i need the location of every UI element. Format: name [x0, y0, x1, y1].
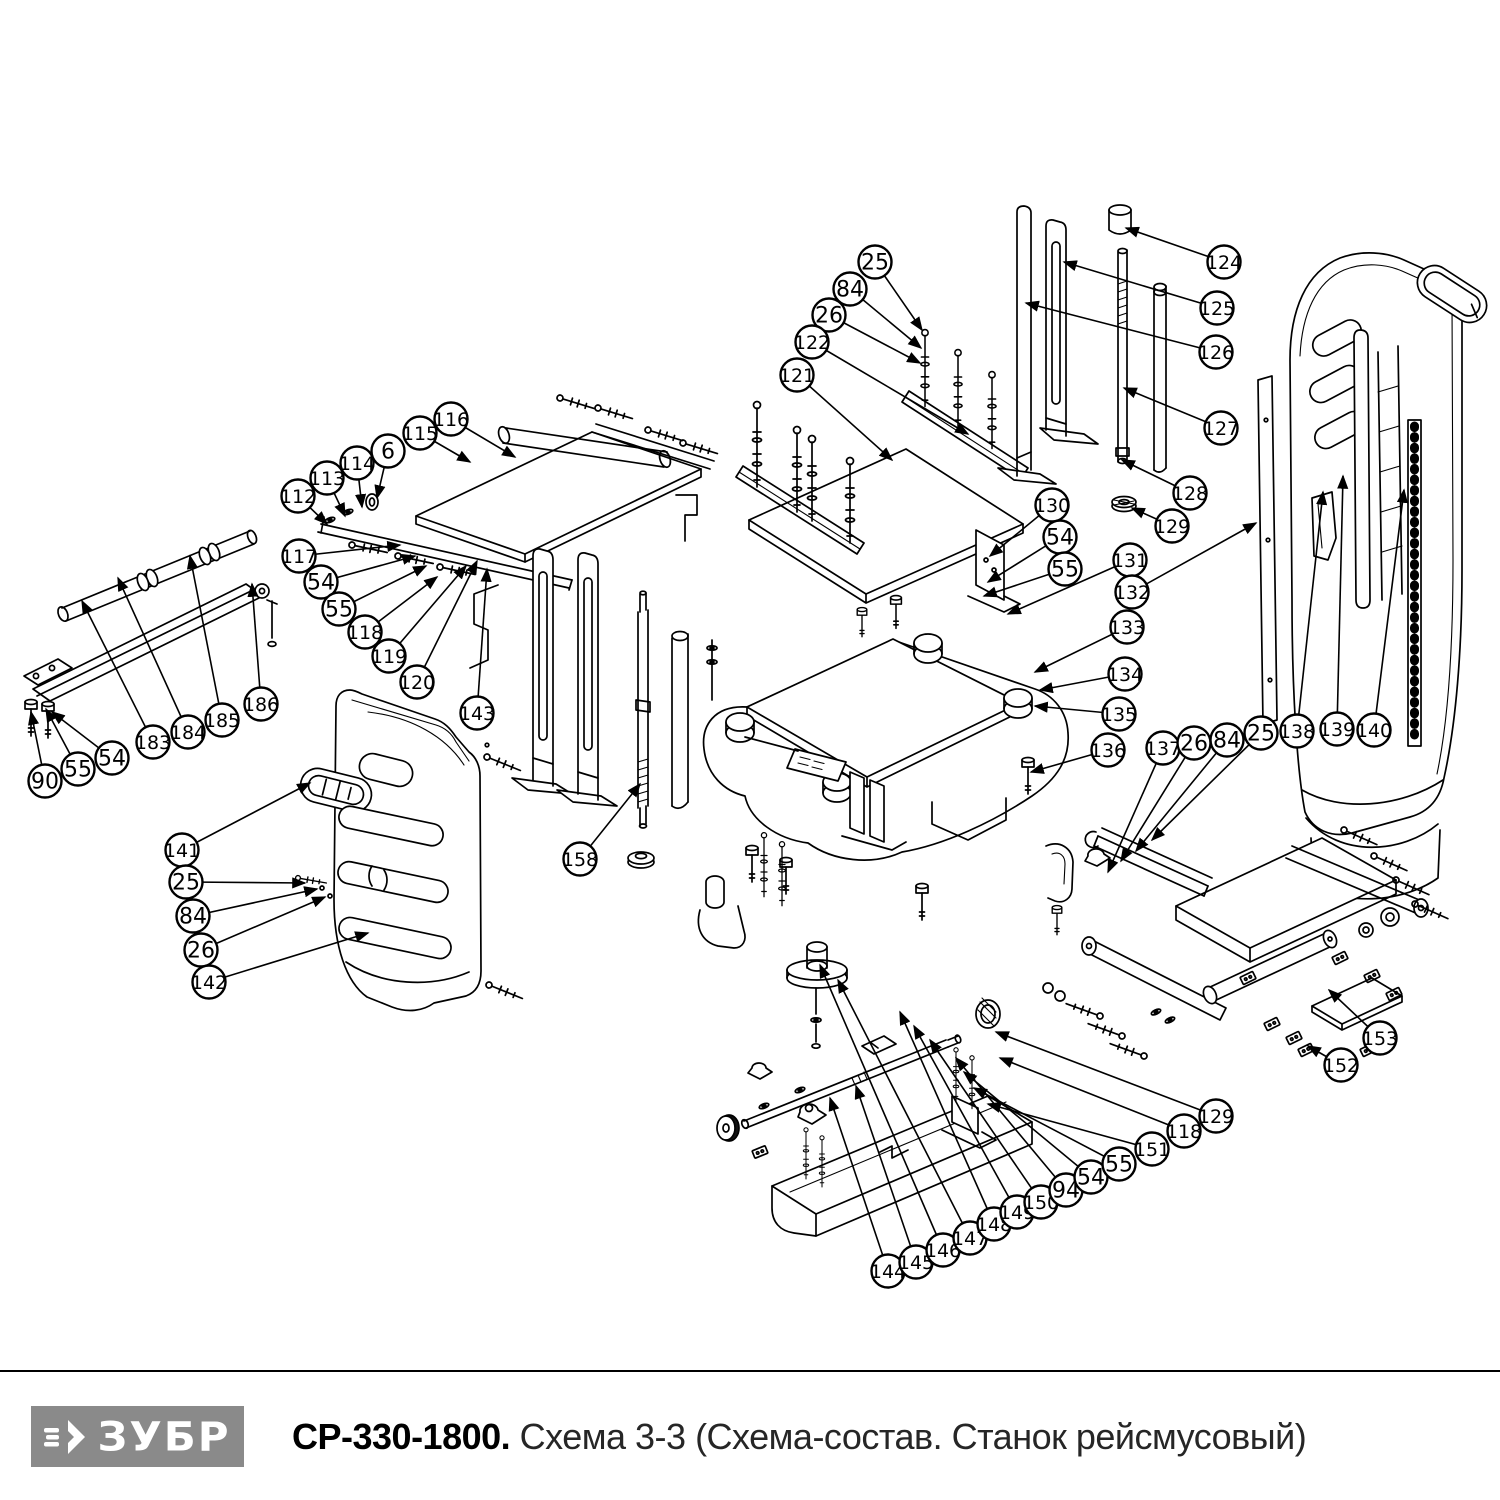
balloon-131: 131 — [1112, 544, 1148, 577]
balloon-116: 116 — [433, 403, 469, 436]
balloon-90: 90 — [29, 765, 62, 798]
balloon-130: 130 — [1034, 489, 1070, 522]
schema-description: Схема 3-3 (Схема-состав. Станок рейсмусо… — [510, 1416, 1306, 1458]
part-main-body — [698, 596, 1073, 948]
svg-text:115: 115 — [402, 423, 438, 445]
balloon-143: 143 — [459, 697, 495, 730]
balloon-115: 115 — [402, 417, 438, 450]
part-left-front-cover — [295, 690, 524, 1010]
leader-line — [1064, 262, 1217, 308]
diagram-stage: 1161156114113112117545511811912014390555… — [0, 0, 1500, 1500]
balloon-128: 128 — [1172, 477, 1208, 510]
leader-line — [389, 566, 466, 656]
svg-text:84: 84 — [836, 278, 864, 303]
balloon-127: 127 — [1203, 412, 1239, 445]
balloon-152: 152 — [1323, 1049, 1359, 1082]
leader-line — [417, 561, 477, 682]
balloon-135: 135 — [1101, 698, 1137, 731]
svg-text:90: 90 — [31, 770, 59, 795]
balloon-186: 186 — [243, 688, 279, 721]
balloon-142: 142 — [191, 966, 227, 999]
leader-line — [193, 889, 317, 916]
balloon-185: 185 — [204, 704, 240, 737]
balloon-26: 26 — [1178, 727, 1211, 760]
svg-text:26: 26 — [1180, 732, 1208, 757]
balloon-54: 54 — [96, 742, 129, 775]
svg-text:122: 122 — [794, 332, 830, 354]
svg-text:184: 184 — [170, 722, 206, 744]
svg-text:138: 138 — [1279, 721, 1315, 743]
svg-text:139: 139 — [1319, 719, 1355, 741]
svg-text:137: 137 — [1145, 738, 1181, 760]
svg-text:126: 126 — [1198, 342, 1234, 364]
balloon-140: 140 — [1356, 714, 1392, 747]
balloon-84: 84 — [177, 900, 210, 933]
part-support-rod-assembly — [24, 529, 277, 738]
svg-text:186: 186 — [243, 694, 279, 716]
balloon-121: 121 — [779, 359, 815, 392]
svg-text:54: 54 — [98, 747, 126, 772]
svg-text:128: 128 — [1172, 483, 1208, 505]
balloon-119: 119 — [371, 640, 407, 673]
balloon-112: 112 — [280, 480, 316, 513]
svg-text:55: 55 — [1051, 558, 1079, 583]
svg-text:125: 125 — [1199, 298, 1235, 320]
balloon-138: 138 — [1279, 715, 1315, 748]
svg-text:55: 55 — [1105, 1153, 1133, 1178]
svg-text:55: 55 — [325, 598, 353, 623]
svg-text:118: 118 — [1166, 1121, 1202, 1143]
svg-text:54: 54 — [1077, 1166, 1105, 1191]
svg-text:117: 117 — [281, 546, 317, 568]
svg-text:54: 54 — [307, 571, 335, 596]
leader-line — [201, 897, 325, 950]
svg-text:134: 134 — [1107, 664, 1143, 686]
svg-text:127: 127 — [1203, 418, 1239, 440]
svg-text:55: 55 — [64, 758, 92, 783]
balloon-129: 129 — [1198, 1100, 1234, 1133]
model-number: СР-330-1800. — [292, 1416, 510, 1458]
part-right-side-cover — [1258, 253, 1493, 899]
svg-text:183: 183 — [135, 732, 171, 754]
exploded-view-drawing: 1161156114113112117545511811912014390555… — [0, 0, 1500, 1500]
svg-text:129: 129 — [1198, 1106, 1234, 1128]
balloon-132: 132 — [1114, 576, 1150, 609]
balloon-84: 84 — [1211, 724, 1244, 757]
leader-line — [190, 556, 222, 720]
svg-text:116: 116 — [433, 409, 469, 431]
balloon-184: 184 — [170, 716, 206, 749]
balloon-151: 151 — [1134, 1133, 1170, 1166]
svg-text:153: 153 — [1362, 1028, 1398, 1050]
svg-text:25: 25 — [861, 251, 889, 276]
svg-text:131: 131 — [1112, 550, 1148, 572]
svg-text:120: 120 — [399, 672, 435, 694]
svg-text:124: 124 — [1206, 252, 1242, 274]
balloon-25: 25 — [170, 866, 203, 899]
svg-text:185: 185 — [204, 710, 240, 732]
svg-text:54: 54 — [1046, 526, 1074, 551]
svg-text:112: 112 — [280, 486, 316, 508]
svg-text:130: 130 — [1034, 495, 1070, 517]
balloon-125: 125 — [1199, 292, 1235, 325]
balloon-55: 55 — [1049, 553, 1082, 586]
svg-text:140: 140 — [1356, 720, 1392, 742]
svg-text:142: 142 — [191, 972, 227, 994]
balloon-25: 25 — [1245, 717, 1278, 750]
brand-name: ЗУБР — [97, 1417, 230, 1457]
svg-text:151: 151 — [1134, 1139, 1170, 1161]
balloon-134: 134 — [1107, 658, 1143, 691]
balloon-55: 55 — [1103, 1148, 1136, 1181]
balloon-54: 54 — [1044, 521, 1077, 554]
leader-line — [186, 882, 305, 883]
svg-text:143: 143 — [459, 703, 495, 725]
balloon-25: 25 — [859, 246, 892, 279]
leader-line — [182, 783, 310, 850]
balloon-137: 137 — [1145, 732, 1181, 765]
balloon-6: 6 — [372, 435, 405, 468]
balloon-158: 158 — [562, 843, 598, 876]
svg-text:26: 26 — [815, 304, 843, 329]
balloon-120: 120 — [399, 666, 435, 699]
footer-separator — [0, 1370, 1500, 1372]
balloon-129: 129 — [1154, 510, 1190, 543]
balloon-124: 124 — [1206, 246, 1242, 279]
balloon-136: 136 — [1090, 734, 1126, 767]
svg-text:152: 152 — [1323, 1055, 1359, 1077]
balloon-141: 141 — [164, 834, 200, 867]
svg-text:158: 158 — [562, 849, 598, 871]
balloon-153: 153 — [1362, 1022, 1398, 1055]
brand-arrow-icon — [44, 1417, 90, 1457]
svg-text:25: 25 — [1247, 722, 1275, 747]
svg-text:136: 136 — [1090, 740, 1126, 762]
svg-text:132: 132 — [1114, 582, 1150, 604]
svg-text:141: 141 — [164, 840, 200, 862]
balloon-118: 118 — [1166, 1115, 1202, 1148]
svg-text:84: 84 — [1213, 729, 1241, 754]
brand-logo: ЗУБР — [31, 1406, 244, 1467]
svg-text:6: 6 — [381, 440, 395, 465]
leader-line — [996, 1032, 1216, 1116]
leader-line — [1132, 523, 1256, 592]
svg-text:129: 129 — [1154, 516, 1190, 538]
balloon-139: 139 — [1319, 713, 1355, 746]
svg-text:135: 135 — [1101, 704, 1137, 726]
leader-line — [252, 584, 261, 704]
balloon-122: 122 — [794, 326, 830, 359]
svg-text:133: 133 — [1109, 617, 1145, 639]
balloon-26: 26 — [185, 934, 218, 967]
balloon-183: 183 — [135, 726, 171, 759]
leader-line — [812, 342, 968, 434]
svg-text:26: 26 — [187, 939, 215, 964]
balloon-55: 55 — [323, 593, 356, 626]
drawing-title: СР-330-1800. Схема 3-3 (Схема-состав. Ст… — [292, 1406, 1306, 1467]
svg-text:121: 121 — [779, 365, 815, 387]
balloon-126: 126 — [1198, 336, 1234, 369]
balloon-55: 55 — [62, 753, 95, 786]
svg-text:25: 25 — [172, 871, 200, 896]
svg-text:119: 119 — [371, 646, 407, 668]
part-left-columns — [485, 549, 688, 868]
svg-text:84: 84 — [179, 905, 207, 930]
balloon-133: 133 — [1109, 611, 1145, 644]
svg-text:118: 118 — [347, 622, 383, 644]
